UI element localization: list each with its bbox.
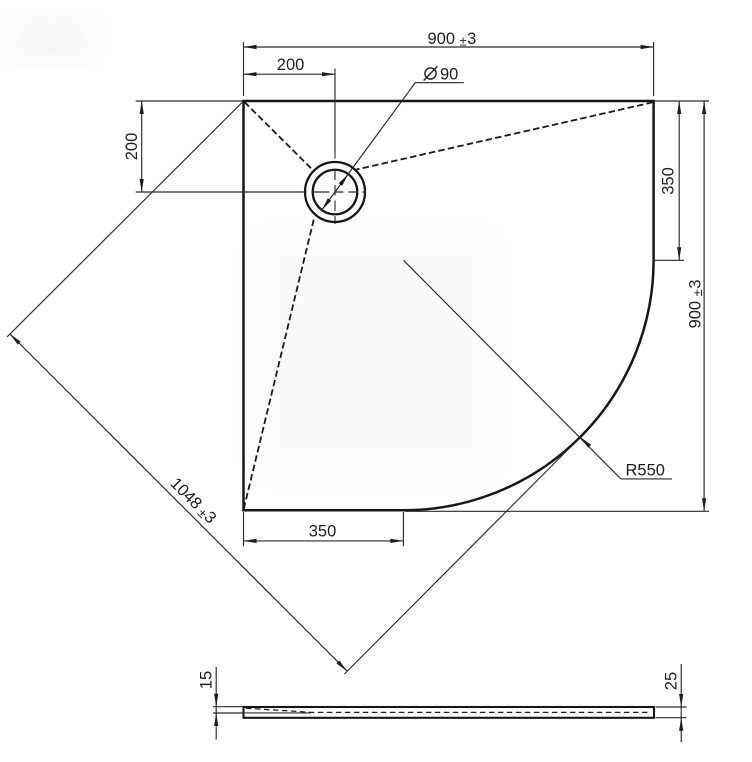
svg-text:15: 15 — [198, 671, 216, 689]
svg-text:350: 350 — [660, 167, 678, 195]
svg-text:R550: R550 — [626, 462, 665, 480]
svg-text:90: 90 — [440, 66, 458, 84]
svg-text:350: 350 — [309, 523, 337, 541]
svg-text:200: 200 — [123, 133, 141, 161]
svg-text:900±3: 900±3 — [428, 30, 477, 49]
svg-text:200: 200 — [277, 56, 305, 74]
svg-text:25: 25 — [663, 672, 681, 690]
svg-text:900±3: 900±3 — [686, 280, 705, 329]
